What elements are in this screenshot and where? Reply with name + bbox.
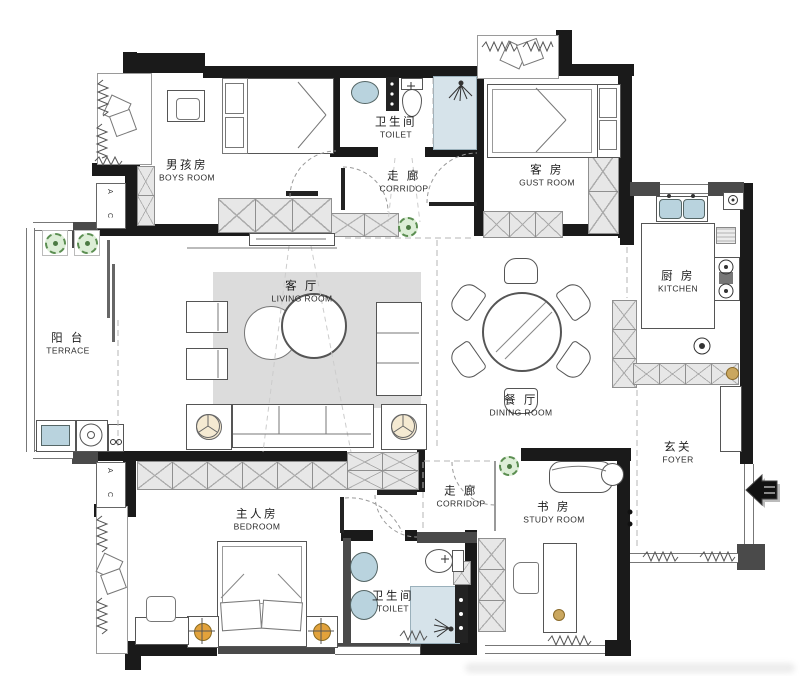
bedroom-wardrobe: [382, 452, 419, 472]
study-cabinet: [478, 569, 506, 602]
utility-box: [108, 424, 124, 452]
guest-wardrobe: [588, 191, 619, 234]
dining-table-icon: [482, 292, 562, 372]
dining-cabinet: [612, 300, 637, 331]
door-leaf: [340, 497, 344, 533]
bedroom-wardrobe: [347, 470, 384, 490]
dining-cabinet: [612, 329, 637, 360]
plant-icon: [499, 456, 519, 476]
wall-segment: [405, 530, 417, 541]
sink-icon: [350, 552, 378, 582]
round-pillow-icon: [601, 463, 624, 486]
room-label-guest-room: 客 房 GUST ROOM: [519, 165, 575, 188]
corridor-cabinet: [364, 213, 399, 237]
dining-chair-icon: [447, 340, 488, 383]
toilet-icon: [425, 549, 453, 573]
small-appliance: [723, 192, 744, 210]
pillow-icon: [599, 88, 617, 118]
room-label-toilet-bottom: 卫生间 TOILET: [372, 591, 414, 614]
bedroom-wardrobe: [242, 461, 279, 490]
ac-unit: A C: [96, 183, 126, 229]
wall-segment: [605, 640, 631, 656]
window: [485, 645, 605, 654]
room-label-corridor-bottom: 走 廊 CORRIDOP: [436, 486, 485, 509]
wall-segment: [330, 147, 378, 157]
armchair-icon: [186, 348, 228, 380]
shoe-cabinet: [659, 363, 687, 385]
desk-chair-icon: [146, 596, 176, 622]
door-leaf: [341, 168, 345, 210]
dining-chair-icon: [555, 280, 596, 323]
side-sofa-icon: [376, 302, 422, 396]
bedroom-wardrobe: [312, 461, 349, 490]
room-label-foyer: 玄关 FOYER: [662, 442, 693, 465]
knob-icon: [726, 367, 739, 380]
desk-lamp-icon: [553, 609, 565, 621]
shoe-cabinet: [633, 363, 661, 385]
wall-segment: [521, 448, 631, 461]
room-label-kitchen: 厨 房 KITCHEN: [658, 271, 698, 294]
bedroom-wardrobe: [172, 461, 209, 490]
ac-letter: A: [106, 189, 113, 194]
room-label-corridor-top: 走 廊 CORRIDOP: [379, 171, 428, 194]
door-leaf: [429, 202, 477, 206]
bedside-lamp-icon: [194, 623, 212, 641]
desk-chair-icon: [513, 562, 539, 594]
armchair-icon: [186, 301, 228, 333]
room-label-boys-room: 男孩房 BOYS ROOM: [159, 160, 215, 183]
wall-segment: [417, 532, 477, 543]
floor-lamp-icon: [391, 414, 417, 440]
bedroom-wardrobe: [347, 452, 384, 472]
wall-segment: [343, 538, 351, 644]
shower-fixture: [455, 585, 468, 643]
toilet-icon: [402, 89, 422, 117]
guest-cabinet: [483, 211, 511, 238]
plant-icon: [77, 233, 98, 254]
scan-artifact: [465, 663, 795, 673]
plant-icon: [398, 217, 418, 237]
wall-segment: [420, 643, 477, 655]
bedroom-wardrobe: [207, 461, 244, 490]
sofa-icon: [232, 404, 374, 448]
sliding-door: [107, 240, 110, 318]
bedroom-wardrobe: [277, 461, 314, 490]
window: [744, 464, 754, 544]
vanity-cabinet: [386, 77, 399, 111]
kitchen-sink-icon: [683, 199, 705, 219]
toilet-icon: [452, 550, 464, 572]
laundry-sink-icon: [76, 420, 108, 452]
bedside-lamp-icon: [313, 623, 331, 641]
ac-letter: C: [106, 492, 113, 497]
shoe-cabinet: [685, 363, 713, 385]
window: [26, 228, 35, 452]
wardrobe-cabinet: [255, 198, 294, 233]
room-label-toilet-top: 卫生间 TOILET: [375, 117, 417, 140]
wall-segment: [125, 163, 137, 233]
sliding-door: [112, 264, 115, 342]
plant-icon: [45, 233, 66, 254]
window: [660, 184, 708, 194]
bedroom-wardrobe: [137, 461, 174, 490]
stove-grate: [719, 272, 733, 284]
bed-blanket: [492, 89, 592, 153]
pillow-icon: [225, 83, 244, 114]
desk-chair-icon: [176, 98, 200, 120]
ac-unit: A C: [96, 462, 126, 508]
bedroom-wardrobe: [382, 470, 419, 490]
dining-chair-icon: [555, 340, 596, 383]
room-label-living-room: 客 厅 LIVING ROOM: [271, 281, 332, 304]
door-leaf: [377, 490, 417, 495]
pillow-icon: [220, 600, 262, 632]
floor-lamp-icon: [196, 414, 222, 440]
closet-cabinet: [137, 195, 155, 226]
pillow-icon: [599, 120, 617, 150]
wall-segment: [123, 53, 205, 73]
study-cabinet: [478, 600, 506, 632]
pillar: [737, 544, 765, 570]
sink-icon: [351, 81, 379, 104]
pillow-icon: [261, 600, 303, 632]
ac-letter: C: [106, 213, 113, 218]
room-label-study-room: 书 房 STUDY ROOM: [523, 502, 584, 525]
room-label-dining-room: 餐 厅 DINING ROOM: [490, 395, 553, 418]
wardrobe-cabinet: [292, 198, 332, 233]
bed-blanket: [222, 546, 302, 604]
floor-plan: A C A C 男孩房 BOYS ROOM 卫生间 TOILET 走 廊 COR…: [0, 0, 800, 676]
wall-segment: [630, 182, 660, 196]
shower-area: [433, 76, 477, 150]
kitchen-sink-icon: [659, 199, 682, 219]
dining-chair-icon: [447, 280, 488, 323]
pillow-icon: [225, 117, 244, 148]
shower-area: [410, 586, 460, 644]
room-label-terrace: 阳 台 TERRACE: [46, 333, 89, 356]
wall-segment: [125, 652, 141, 670]
washer-door: [41, 425, 70, 446]
door-frame-line: [494, 461, 496, 531]
wardrobe-cabinet: [218, 198, 257, 233]
tv-console: [249, 233, 335, 246]
corridor-cabinet: [331, 213, 366, 237]
guest-cabinet: [509, 211, 537, 238]
window: [630, 553, 738, 563]
closet-cabinet: [137, 166, 155, 197]
window: [335, 646, 420, 655]
dining-chair-icon: [504, 258, 538, 284]
room-label-bedroom: 主人房 BEDROOM: [234, 509, 281, 532]
range-hood-icon: [716, 227, 736, 244]
foyer-cabinet: [720, 386, 742, 452]
study-cabinet: [478, 538, 506, 571]
ac-letter: A: [106, 468, 113, 473]
guest-cabinet: [535, 211, 563, 238]
door-leaf: [286, 191, 318, 196]
